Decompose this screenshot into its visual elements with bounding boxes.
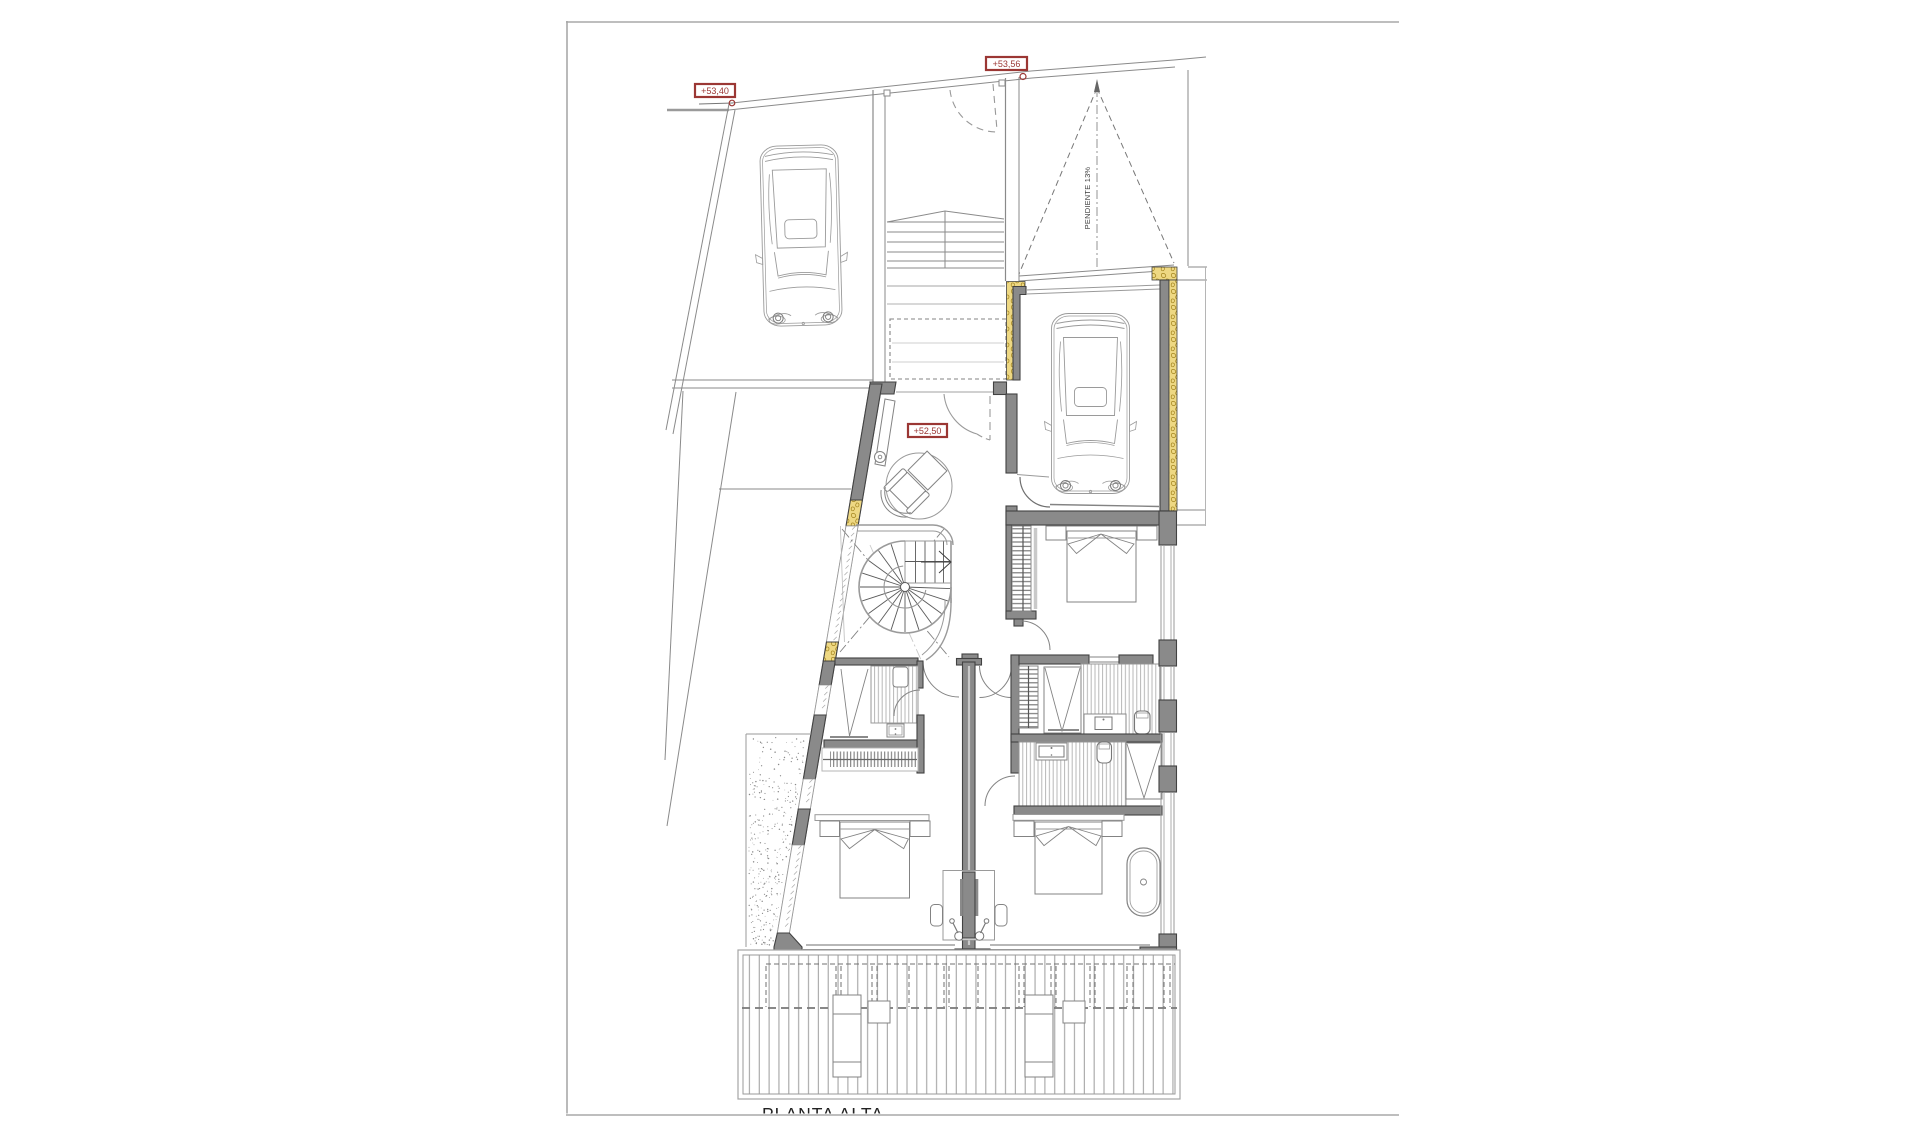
svg-text:+53,56: +53,56 (993, 59, 1021, 69)
svg-text:+53,40: +53,40 (701, 86, 729, 96)
svg-text:PENDIENTE 13%: PENDIENTE 13% (1083, 167, 1092, 230)
svg-text:+52,50: +52,50 (914, 426, 942, 436)
